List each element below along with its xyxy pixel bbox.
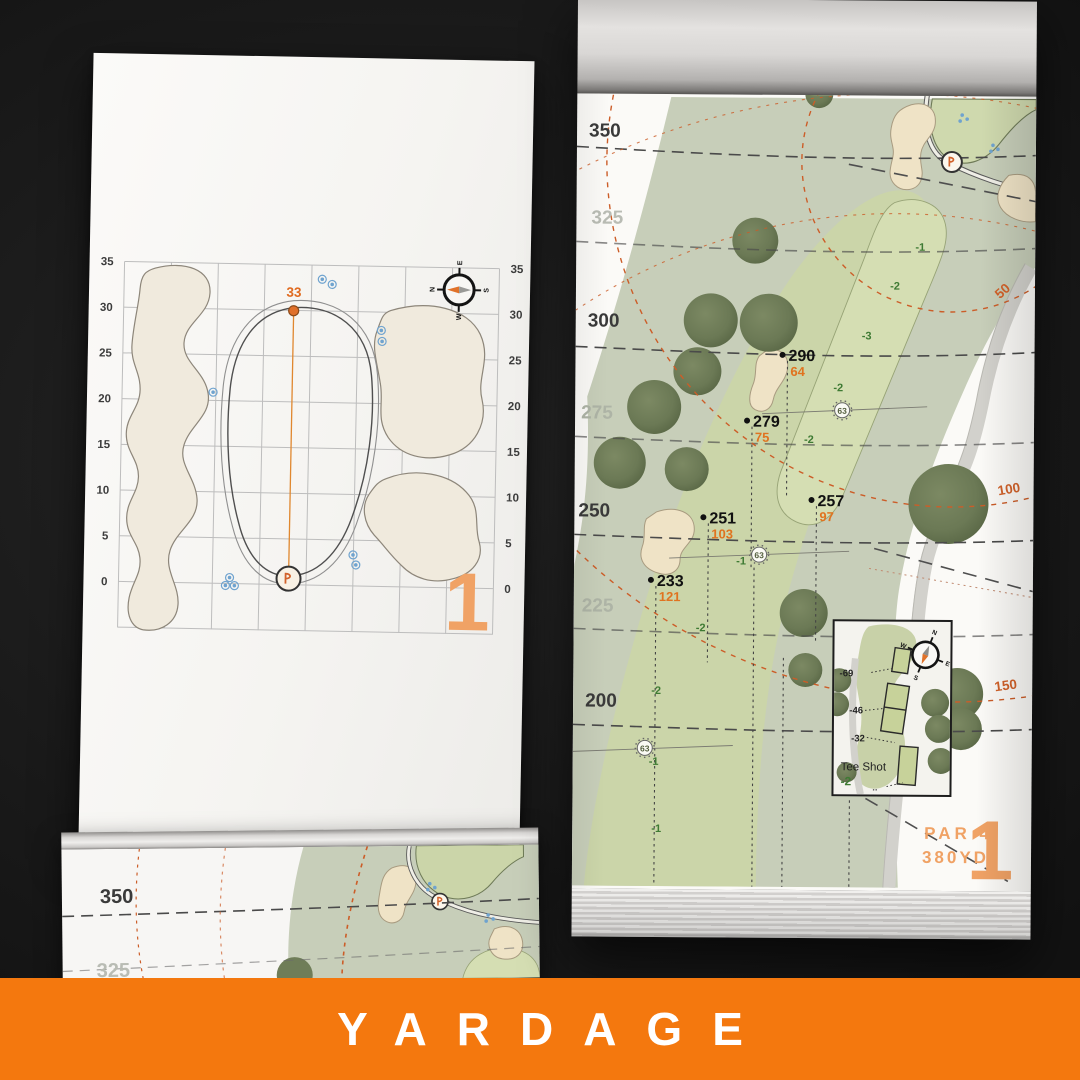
right-page: 50 100 150 63: [571, 0, 1037, 940]
svg-text:63: 63: [837, 406, 847, 416]
bunkers: [123, 265, 487, 637]
measure-dot: [289, 306, 299, 316]
slope-value: -1: [649, 756, 659, 768]
axis-label: 0: [504, 584, 511, 596]
ladder-label-250: 250: [578, 500, 610, 521]
left-page: 35 30 25 20 15 10 5 0 35 30 25 20 15 10 …: [78, 53, 534, 847]
ladder-label: 350: [100, 886, 134, 908]
hole-map: 50 100 150 63: [572, 93, 1037, 891]
pin-distance-label: 33: [286, 285, 302, 300]
arc-label-150: 150: [994, 676, 1018, 694]
axis-label: 5: [102, 530, 109, 542]
sprinkler-icon: [318, 275, 326, 283]
slope-value: -2: [651, 685, 661, 697]
pin-marker: [942, 152, 962, 172]
svg-text:63: 63: [640, 743, 650, 753]
svg-text:N: N: [430, 287, 437, 292]
remaining-distance: 97: [819, 509, 834, 524]
tee-offset-label: -69: [840, 668, 854, 679]
bunker: [372, 305, 485, 459]
axis-label: 0: [101, 576, 108, 588]
banner-title: YARDAGE: [307, 1002, 773, 1056]
sprinkler-icon: [328, 280, 336, 288]
page-stack-edge: [571, 888, 1030, 939]
axis-label: 15: [97, 439, 111, 451]
tee-box: [897, 746, 918, 785]
measure-line: [289, 313, 294, 569]
pin-measurement: 33: [276, 285, 306, 591]
bottom-page: 350 325: [61, 828, 540, 983]
tee-box: [892, 648, 911, 674]
bottom-hole-map: 350 325: [61, 845, 539, 983]
yardage-banner: YARDAGE: [0, 978, 1080, 1080]
ladder-label-275: 275: [581, 402, 613, 423]
ladder-label-350: 350: [589, 120, 621, 141]
carry-distance: 279: [753, 414, 780, 431]
remaining-distance: 103: [711, 526, 733, 541]
pin-marker: [432, 893, 448, 909]
axis-label: 30: [510, 310, 523, 322]
slope-value: -1: [651, 823, 661, 835]
slope-value: -2: [833, 382, 843, 394]
svg-text:W: W: [456, 313, 463, 320]
sprinkler-icon: [230, 582, 238, 590]
carry-distance: 233: [657, 573, 684, 590]
carry-distance: 257: [817, 493, 844, 510]
green-outline: [218, 299, 381, 586]
slope-value: -2: [804, 434, 814, 446]
axis-label: 30: [100, 302, 113, 314]
remaining-distance: 64: [790, 364, 805, 379]
sprinkler-icon: [225, 573, 233, 581]
axis-label: 10: [96, 485, 109, 497]
page-curl-edge: [577, 0, 1037, 97]
axis-label: 35: [510, 264, 524, 276]
green-detail-map: 35 30 25 20 15 10 5 0 35 30 25 20 15 10 …: [78, 53, 534, 847]
svg-text:S: S: [484, 288, 491, 293]
axis-label: 5: [505, 538, 512, 550]
sprinkler-icon: [221, 581, 229, 589]
axis-label: 25: [99, 347, 113, 359]
slope-value: -2: [890, 281, 900, 293]
arc-label-100: 100: [997, 480, 1022, 499]
remaining-distance: 75: [755, 430, 770, 445]
axis-label: 15: [507, 447, 521, 459]
axis-label: 20: [508, 401, 521, 413]
ladder-label-200: 200: [585, 690, 617, 711]
axis-label: 35: [101, 256, 115, 268]
slope-value: -2: [696, 622, 706, 634]
hole-number: 1: [443, 557, 490, 649]
yardage-book-poster: { "banner": { "title": "YARDAGE", "bg_co…: [0, 0, 1080, 1080]
ladder-label-225: 225: [582, 595, 614, 616]
slope-value: -1: [915, 242, 925, 254]
svg-text:E: E: [457, 260, 464, 265]
tee-inset: -69 -46 -32 .. Tee Shot -2: [824, 619, 960, 796]
sprinkler-markers: [205, 273, 387, 592]
slope-value: -1: [736, 556, 746, 568]
carry-distance: 251: [709, 510, 736, 527]
slope-value: -3: [862, 330, 872, 342]
axis-label: 20: [98, 393, 111, 405]
tee-offset-label: -46: [849, 705, 863, 716]
axis-label: 10: [506, 492, 519, 504]
ladder-label-300: 300: [588, 310, 620, 331]
remaining-distance: 121: [659, 589, 681, 604]
hole-number: 1: [966, 803, 1013, 891]
tee-offset-dots: ..: [872, 782, 877, 793]
svg-text:63: 63: [754, 550, 764, 560]
ladder-label-325: 325: [591, 207, 623, 228]
pin-marker: [276, 566, 300, 590]
tee-offset-label: -32: [851, 733, 865, 744]
axis-label: 25: [509, 355, 523, 367]
carry-distance: 290: [788, 348, 815, 365]
tee-shot-slope: -2: [840, 774, 851, 788]
tee-shot-label: Tee Shot: [841, 761, 887, 773]
bunker: [123, 265, 211, 632]
